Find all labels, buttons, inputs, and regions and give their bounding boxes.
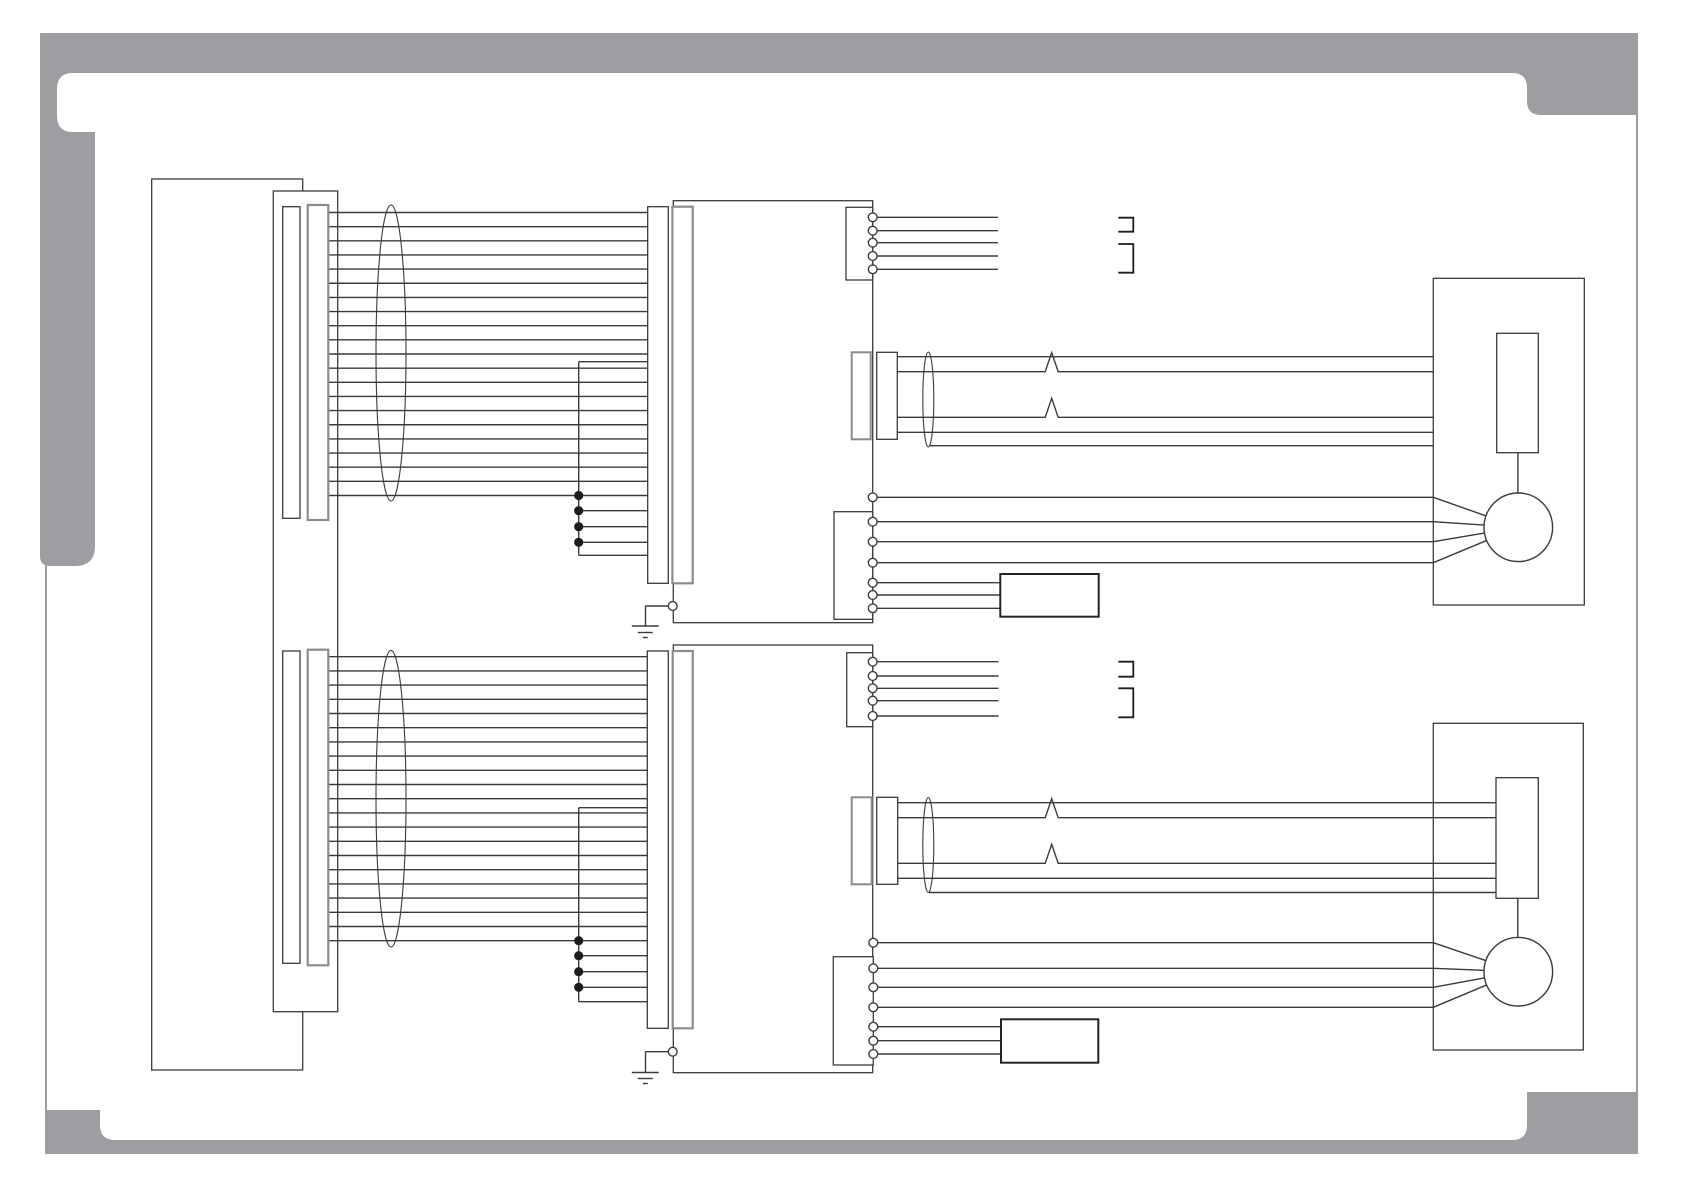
cable-connector-black-lower [877,797,898,884]
mid-cable-wires-upper [897,353,1433,446]
ground-pin-upper [668,602,677,611]
wire-group-brackets-lower [1118,662,1133,718]
junction-dot [574,522,583,531]
motor-circle-lower [1484,937,1553,1006]
pin-circle [868,213,877,222]
pin-circle [868,657,877,666]
cable-wire-with-break [898,844,1496,863]
cable-wire-with-break [897,398,1433,417]
ground-symbol-upper [632,602,677,638]
cable-wire-with-break [897,353,1433,372]
junction-bus-lower [574,808,648,1002]
junction-dot [574,951,583,960]
cable-connector-gray-upper [852,352,871,439]
aux-component-box-lower [1001,1019,1098,1062]
right-connector-col-b-lower [673,651,693,1028]
pin-circle [869,983,878,992]
cable-connector-black-upper [877,352,898,439]
junction-dot [574,983,583,992]
ground-symbol-lower [632,1047,677,1083]
motor-circle-upper [1484,493,1553,562]
left-connector-col-b-lower [308,650,329,966]
pin-circle [868,265,877,274]
wiring-diagram-canvas [0,0,1682,1190]
junction-dot [574,936,583,945]
pin-circle [868,578,877,587]
pin-circle [868,226,877,235]
pin-circle [868,712,877,721]
pin-circle [869,1003,878,1012]
pin-circle [868,604,877,613]
pin-circle [869,964,878,973]
pin-circle [869,1022,878,1031]
pin-circle [868,252,877,261]
right-connector-col-a-lower [647,651,668,1028]
pin-circle [868,558,877,567]
capacitor-rect-upper [1497,333,1539,452]
capacitor-rect-lower [1496,778,1538,899]
junction-bus-upper [574,362,648,556]
group-bracket [1118,218,1133,232]
pin-circle [869,938,878,947]
junction-dot [574,506,583,515]
group-bracket [1118,244,1133,273]
frame-bottom-band [45,1092,1638,1154]
cable-loom-ellipse-upper [376,205,406,501]
schematic-page [0,0,1682,1190]
left-connector-col-a-upper [283,207,300,519]
motor-pins-upper [868,493,1433,613]
motor-connector-housing-lower [833,957,873,1065]
mid-cable-wires-lower [898,799,1496,893]
pin-circle [868,684,877,693]
left-connector-col-a-lower [283,651,300,963]
pin-circle [868,591,877,600]
junction-dot [574,967,583,976]
aux-component-box-upper [1000,574,1098,617]
ground-pin-lower [668,1047,677,1056]
motor-connector-housing-upper [834,512,873,620]
left-connector-col-b-upper [308,205,329,520]
pin-circle [868,238,877,247]
signal-pins-lower [868,657,998,720]
right-connector-col-b-upper [672,207,692,584]
junction-dot [574,538,583,547]
group-bracket [1118,688,1133,717]
cable-connector-gray-lower [852,797,872,884]
pin-circle [868,517,877,526]
pin-circle [868,493,877,502]
pin-circle [868,696,877,705]
cable-wire-with-break [898,799,1496,818]
motor-pins-lower [869,938,1433,1058]
wire-group-brackets-upper [1118,218,1133,273]
junction-dot [574,491,583,500]
group-bracket [1118,662,1133,677]
pin-circle [869,1036,878,1045]
pin-circle [868,537,877,546]
pin-circle [868,672,877,681]
pin-circle [869,1050,878,1059]
signal-pins-upper [868,213,998,274]
right-connector-col-a-upper [648,207,669,584]
